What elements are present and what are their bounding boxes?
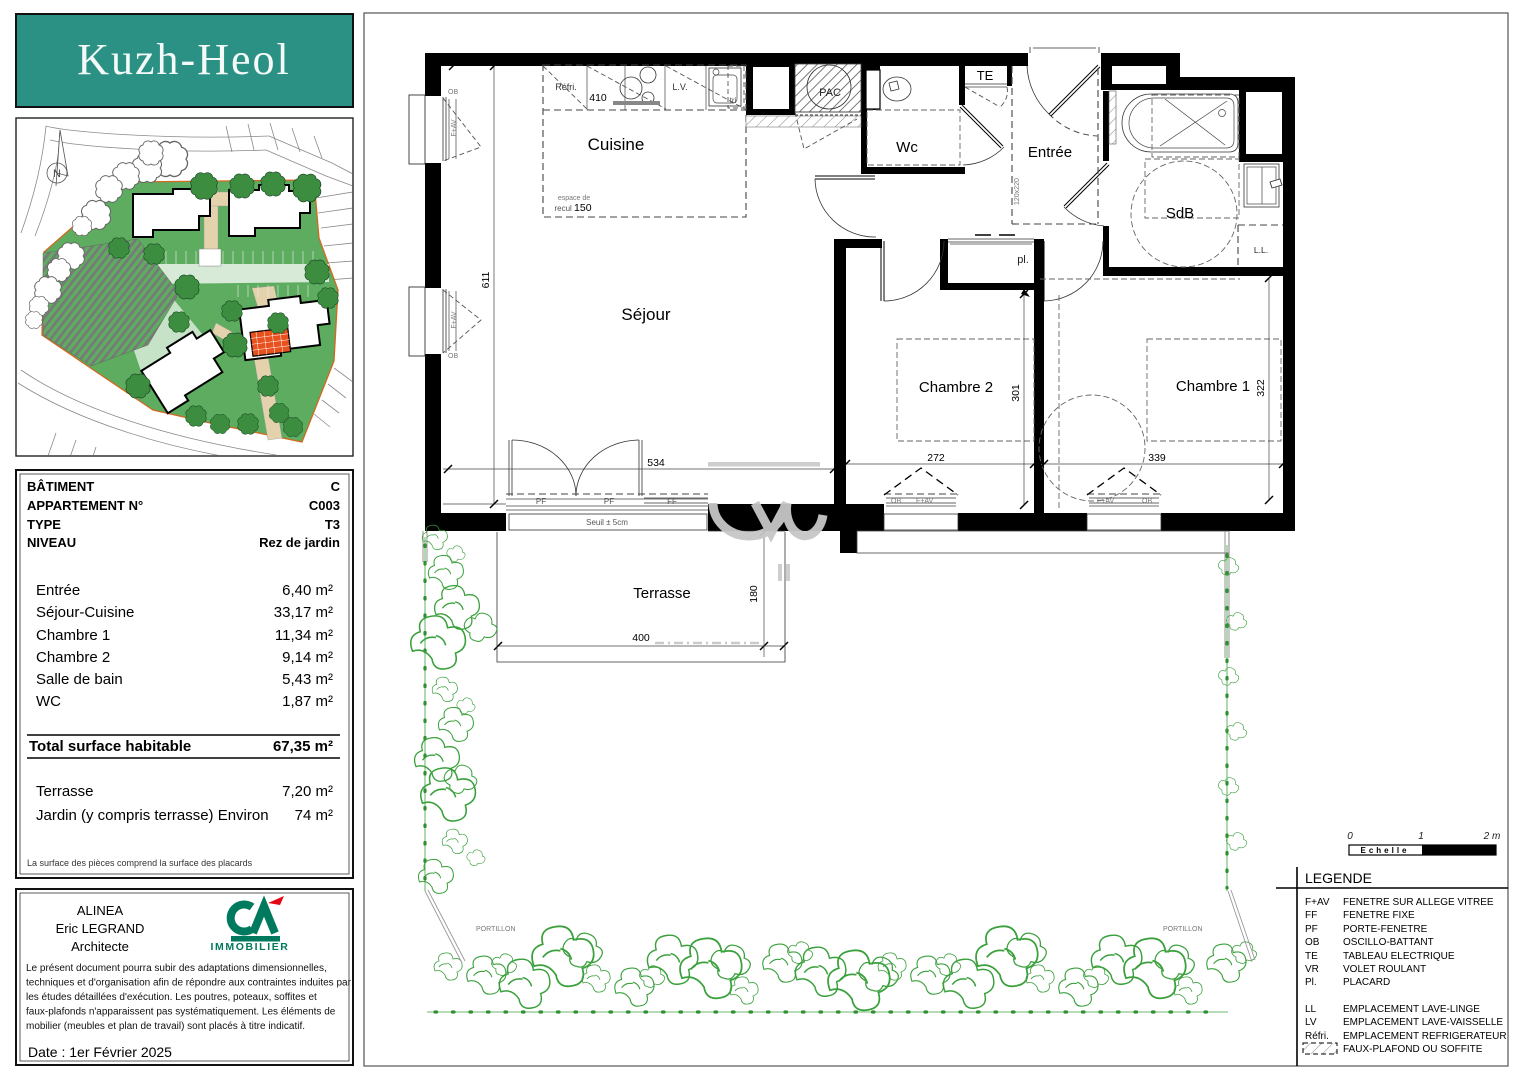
svg-text:PF: PF — [604, 497, 614, 506]
svg-text:F+AV: F+AV — [451, 311, 458, 329]
svg-text:6,40 m²: 6,40 m² — [282, 582, 333, 599]
svg-text:Le présent document pourra: Le présent document pourra subir des ada… — [26, 963, 327, 974]
svg-text:tri: tri — [730, 96, 737, 105]
svg-text:272: 272 — [927, 452, 945, 464]
svg-text:EMPLACEMENT LAVE-LINGE: EMPLACEMENT LAVE-LINGE — [1343, 1004, 1480, 1015]
svg-text:FENETRE SUR ALLEGE VITREE: FENETRE SUR ALLEGE VITREE — [1343, 897, 1494, 908]
svg-text:1: 1 — [1418, 831, 1424, 842]
svg-text:mobilier (meubles et plan de t: mobilier (meubles et plan de travail) so… — [26, 1021, 305, 1032]
svg-text:Wc: Wc — [896, 139, 918, 156]
svg-text:PORTILLON: PORTILLON — [1163, 926, 1203, 933]
svg-text:Séjour-Cuisine: Séjour-Cuisine — [36, 604, 134, 621]
svg-text:TYPE: TYPE — [27, 517, 61, 532]
svg-text:FF: FF — [667, 497, 677, 506]
svg-text:TE: TE — [1305, 951, 1318, 962]
svg-text:IMMOBILIER: IMMOBILIER — [211, 941, 290, 953]
svg-text:67,35 m²: 67,35 m² — [273, 738, 333, 755]
svg-text:FAUX-PLAFOND OU SOFFITE: FAUX-PLAFOND OU SOFFITE — [1343, 1044, 1483, 1055]
svg-text:5,43 m²: 5,43 m² — [282, 671, 333, 688]
svg-text:LV: LV — [1305, 1017, 1317, 1028]
svg-text:les études détaillées d'exé: les études détaillées d'exécution. Les p… — [26, 992, 317, 1003]
svg-text:F+AV: F+AV — [1305, 897, 1330, 908]
svg-text:7,20 m²: 7,20 m² — [282, 783, 333, 800]
svg-text:OB: OB — [1142, 498, 1152, 505]
svg-text:410: 410 — [589, 92, 607, 104]
svg-text:EMPLACEMENT LAVE-VAISSELLE: EMPLACEMENT LAVE-VAISSELLE — [1343, 1017, 1503, 1028]
svg-text:Chambre 1: Chambre 1 — [1176, 378, 1250, 395]
svg-text:C: C — [331, 479, 341, 494]
svg-text:C003: C003 — [309, 498, 340, 513]
svg-text:Echelle: Echelle — [1360, 846, 1409, 855]
svg-text:TABLEAU ELECTRIQUE: TABLEAU ELECTRIQUE — [1343, 951, 1455, 962]
svg-text:Seuil ± 5cm: Seuil ± 5cm — [586, 518, 628, 527]
svg-text:BÂTIMENT: BÂTIMENT — [27, 479, 94, 494]
svg-text:Jardin (y compris terrasse) En: Jardin (y compris terrasse) Environ — [36, 807, 269, 824]
svg-text:Séjour: Séjour — [621, 305, 670, 324]
svg-text:F+AV: F+AV — [916, 498, 934, 505]
svg-text:Rez de jardin: Rez de jardin — [259, 535, 340, 550]
svg-text:534: 534 — [647, 457, 665, 469]
svg-text:400: 400 — [632, 632, 650, 644]
svg-text:611: 611 — [480, 271, 492, 288]
svg-text:WC: WC — [36, 693, 61, 710]
svg-text:L.V.: L.V. — [672, 82, 687, 92]
svg-text:Total surface habitable: Total surface habitable — [29, 738, 191, 755]
svg-text:PAC: PAC — [819, 87, 841, 99]
svg-text:pl.: pl. — [1017, 254, 1029, 266]
svg-text:LL: LL — [1305, 1004, 1317, 1015]
svg-text:Entrée: Entrée — [36, 582, 80, 599]
svg-text:L.L.: L.L. — [1254, 245, 1268, 255]
svg-text:11,34 m²: 11,34 m² — [275, 627, 333, 644]
svg-text:faux-plafonds n'apparaissent: faux-plafonds n'apparaissent pas systéma… — [26, 1007, 336, 1018]
svg-text:PORTE-FENETRE: PORTE-FENETRE — [1343, 924, 1428, 935]
svg-text:Terrasse: Terrasse — [36, 783, 94, 800]
svg-text:T3: T3 — [325, 517, 340, 532]
svg-text:F+AV: F+AV — [1097, 498, 1115, 505]
svg-text:PF: PF — [536, 497, 546, 506]
svg-text:OB: OB — [891, 498, 901, 505]
svg-text:PF: PF — [1305, 924, 1318, 935]
svg-text:PLACARD: PLACARD — [1343, 977, 1390, 988]
svg-text:La surface des pièces comprend: La surface des pièces comprend la surfac… — [27, 858, 253, 868]
svg-text:180: 180 — [748, 585, 760, 603]
svg-text:Salle de bain: Salle de bain — [36, 671, 123, 688]
svg-text:Chambre 2: Chambre 2 — [919, 379, 993, 396]
svg-text:33,17 m²: 33,17 m² — [274, 604, 333, 621]
svg-text:NIVEAU: NIVEAU — [27, 535, 76, 550]
svg-text:VOLET ROULANT: VOLET ROULANT — [1343, 964, 1426, 975]
svg-text:301: 301 — [1010, 384, 1022, 402]
svg-text:Réfri.: Réfri. — [555, 82, 577, 92]
svg-text:74 m²: 74 m² — [295, 807, 333, 824]
svg-text:TE: TE — [977, 68, 994, 83]
svg-text:1,87 m²: 1,87 m² — [282, 693, 333, 710]
svg-text:EMPLACEMENT REFRIGERATEUR: EMPLACEMENT REFRIGERATEUR — [1343, 1031, 1507, 1042]
svg-text:N: N — [53, 168, 61, 180]
svg-text:Chambre 1: Chambre 1 — [36, 627, 110, 644]
svg-text:Entrée: Entrée — [1028, 144, 1072, 161]
svg-text:Cuisine: Cuisine — [588, 135, 645, 154]
svg-text:339: 339 — [1148, 452, 1166, 464]
svg-text:F+AV: F+AV — [451, 119, 458, 137]
svg-text:Réfri.: Réfri. — [1305, 1031, 1329, 1042]
svg-text:OB: OB — [1305, 937, 1320, 948]
svg-text:Chambre 2: Chambre 2 — [36, 649, 110, 666]
svg-text:techniques et d'organisation a: techniques et d'organisation afin de rép… — [26, 978, 352, 989]
svg-text:FENETRE FIXE: FENETRE FIXE — [1343, 910, 1415, 921]
svg-text:FF: FF — [1305, 910, 1317, 921]
svg-text:Kuzh-Heol: Kuzh-Heol — [77, 35, 291, 84]
svg-text:120x220: 120x220 — [1014, 178, 1021, 205]
svg-text:LEGENDE: LEGENDE — [1305, 870, 1372, 886]
svg-text:SdB: SdB — [1166, 205, 1194, 222]
svg-text:recul 150: recul 150 — [554, 202, 591, 214]
svg-text:Terrasse: Terrasse — [633, 585, 691, 602]
svg-text:OB: OB — [448, 89, 458, 96]
svg-text:ALINEA: ALINEA — [77, 903, 124, 918]
svg-text:APPARTEMENT N°: APPARTEMENT N° — [27, 498, 143, 513]
svg-text:Architecte: Architecte — [71, 939, 129, 954]
svg-text:OB: OB — [448, 353, 458, 360]
svg-text:Pl.: Pl. — [1305, 977, 1317, 988]
svg-text:Eric LEGRAND: Eric LEGRAND — [56, 921, 145, 936]
svg-text:Date : 1er Février 2025: Date : 1er Février 2025 — [28, 1044, 172, 1060]
svg-text:0: 0 — [1347, 831, 1353, 842]
svg-text:2 m: 2 m — [1483, 831, 1501, 842]
svg-text:322: 322 — [1255, 379, 1267, 397]
svg-text:PORTILLON: PORTILLON — [476, 926, 516, 933]
svg-text:9,14 m²: 9,14 m² — [282, 649, 333, 666]
svg-text:VR: VR — [1305, 964, 1319, 975]
svg-text:OSCILLO-BATTANT: OSCILLO-BATTANT — [1343, 937, 1434, 948]
svg-text:espace de: espace de — [558, 195, 590, 202]
